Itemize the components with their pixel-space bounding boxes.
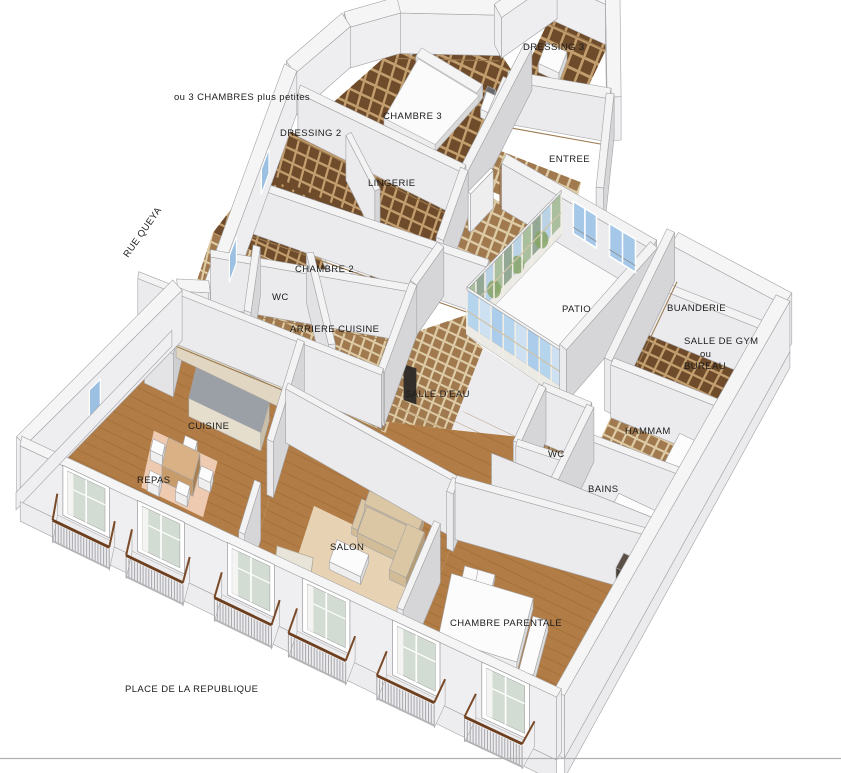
svg-text:DRESSING 3: DRESSING 3 (523, 42, 585, 53)
svg-text:SALLE DE GYM: SALLE DE GYM (684, 336, 759, 347)
svg-text:ENTREE: ENTREE (549, 154, 590, 165)
svg-text:ou: ou (700, 349, 711, 360)
svg-text:BUREAU: BUREAU (684, 361, 726, 372)
svg-text:LINGERIE: LINGERIE (368, 178, 416, 189)
svg-text:WC: WC (548, 449, 565, 460)
svg-text:WC: WC (272, 292, 289, 303)
svg-text:CHAMBRE 2: CHAMBRE 2 (295, 264, 354, 275)
svg-text:ou 3 CHAMBRES plus petites: ou 3 CHAMBRES plus petites (174, 92, 310, 103)
svg-text:CUISINE: CUISINE (188, 421, 229, 432)
svg-text:PATIO: PATIO (562, 304, 591, 315)
svg-text:PLACE DE LA REPUBLIQUE: PLACE DE LA REPUBLIQUE (125, 684, 258, 695)
svg-text:HAMMAM: HAMMAM (625, 426, 671, 437)
svg-text:SALLE D'EAU: SALLE D'EAU (405, 389, 470, 400)
svg-text:BUANDERIE: BUANDERIE (667, 303, 726, 314)
svg-text:REPAS: REPAS (137, 475, 171, 486)
svg-text:ARRIERE CUISINE: ARRIERE CUISINE (290, 324, 379, 335)
svg-text:BAINS: BAINS (588, 484, 619, 495)
svg-text:CHAMBRE 3: CHAMBRE 3 (383, 111, 442, 122)
svg-text:DRESSING 2: DRESSING 2 (280, 128, 342, 139)
svg-text:CHAMBRE PARENTALE: CHAMBRE PARENTALE (450, 618, 562, 629)
svg-text:SALON: SALON (330, 542, 364, 553)
